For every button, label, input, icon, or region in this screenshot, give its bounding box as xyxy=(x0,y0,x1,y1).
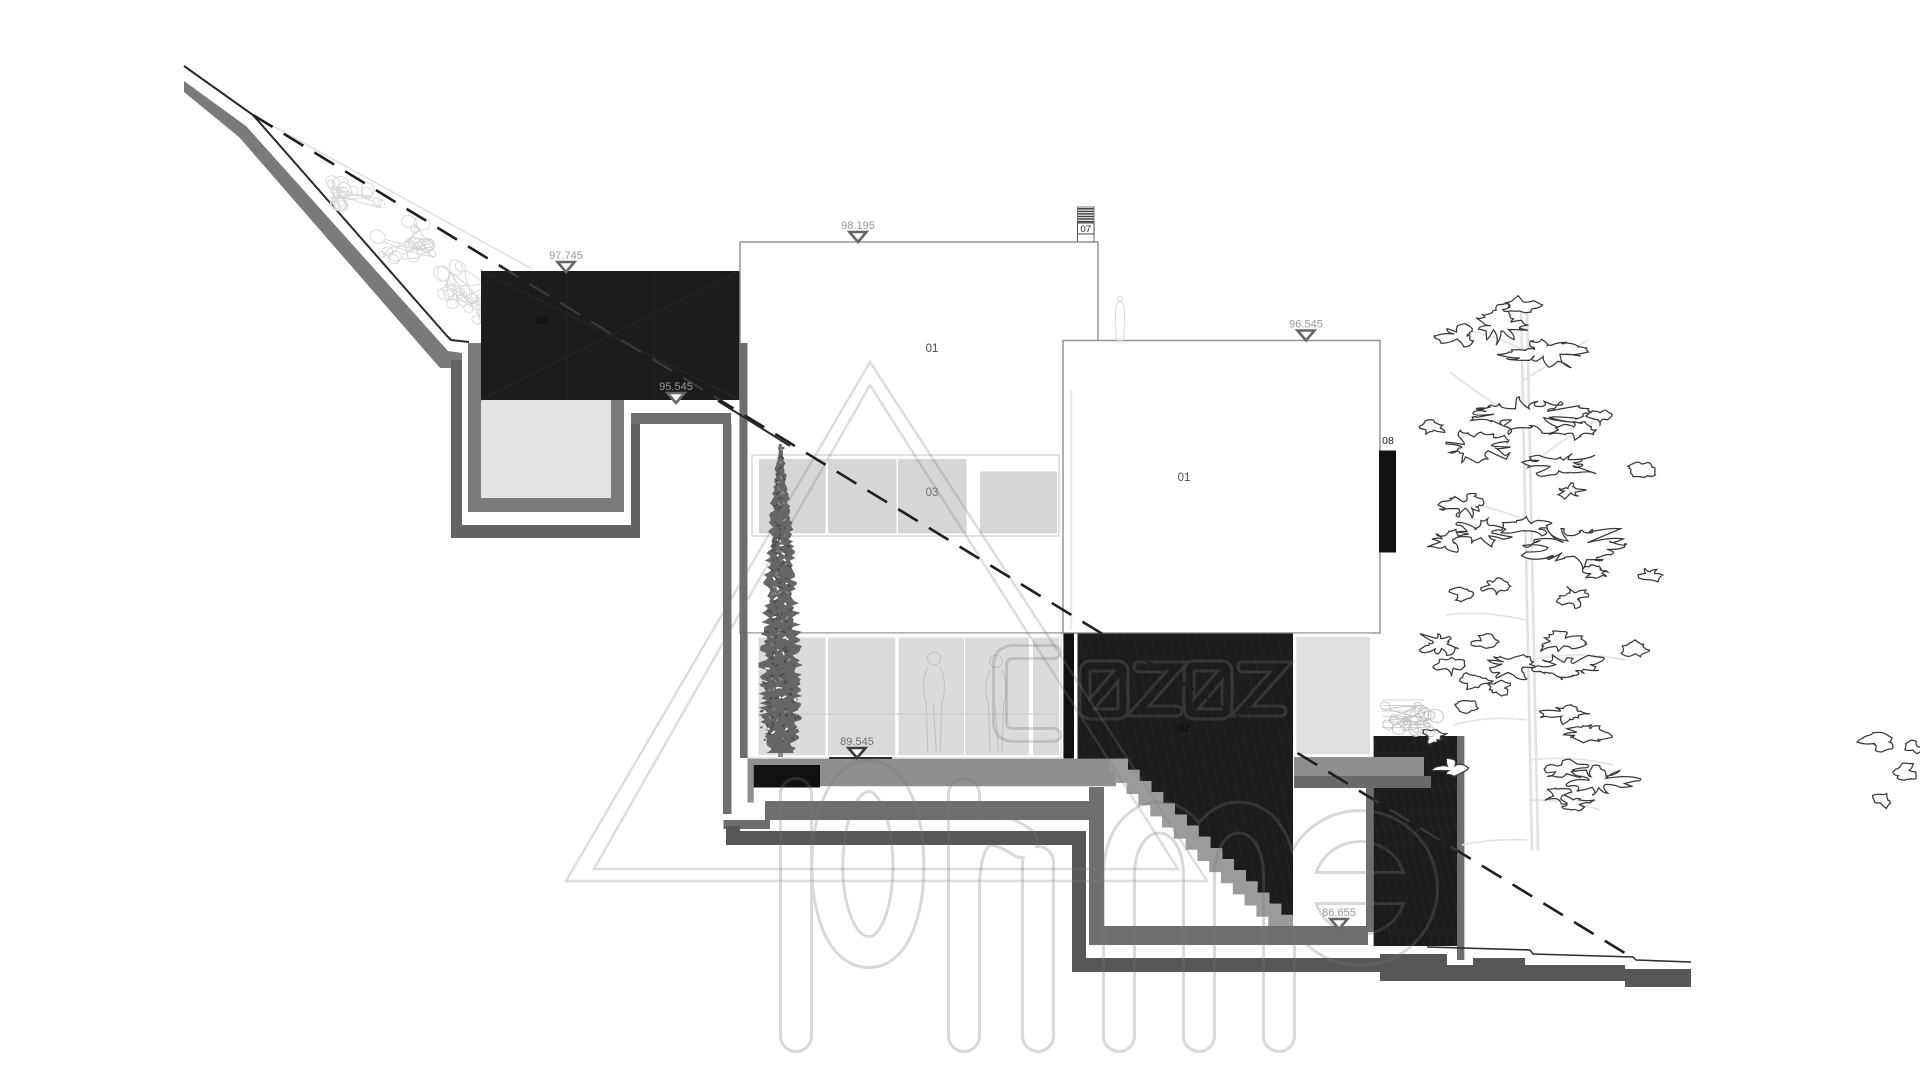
svg-text:97.745: 97.745 xyxy=(549,250,583,262)
svg-text:08: 08 xyxy=(1382,435,1394,447)
svg-text:03: 03 xyxy=(926,487,939,499)
svg-text:02: 02 xyxy=(1178,722,1190,734)
svg-text:86.655: 86.655 xyxy=(1322,907,1356,919)
svg-text:98.195: 98.195 xyxy=(841,220,875,232)
svg-text:96.545: 96.545 xyxy=(1289,319,1323,331)
svg-text:01: 01 xyxy=(1178,472,1191,484)
svg-text:01: 01 xyxy=(926,343,939,355)
svg-text:95.545: 95.545 xyxy=(659,381,693,393)
svg-text:02: 02 xyxy=(536,315,548,327)
svg-text:89.545: 89.545 xyxy=(840,736,874,748)
